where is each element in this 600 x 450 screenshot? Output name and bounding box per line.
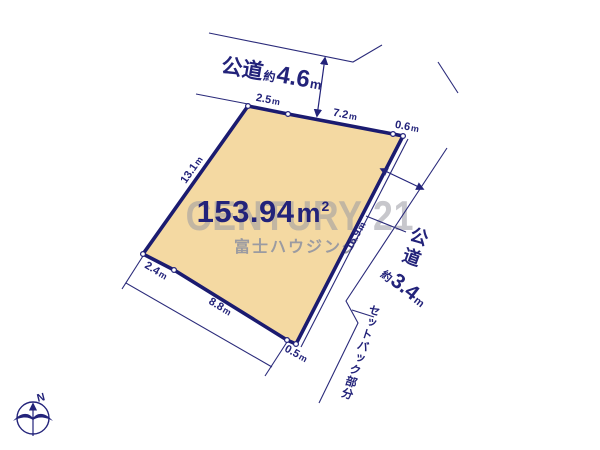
compass-icon	[13, 402, 53, 436]
area-unit: m	[297, 198, 321, 229]
area-unit-superscript: 2	[322, 198, 330, 214]
road-width-value: 4.6	[274, 61, 312, 94]
area-label: 153.94 m 2	[197, 194, 330, 230]
bottom-dimension-lines	[122, 256, 287, 376]
area-value: 153.94	[197, 194, 295, 230]
right-road-edge-lines	[301, 139, 447, 403]
plot-diagram: CENTURY 21 富士ハウジング	[0, 0, 600, 450]
